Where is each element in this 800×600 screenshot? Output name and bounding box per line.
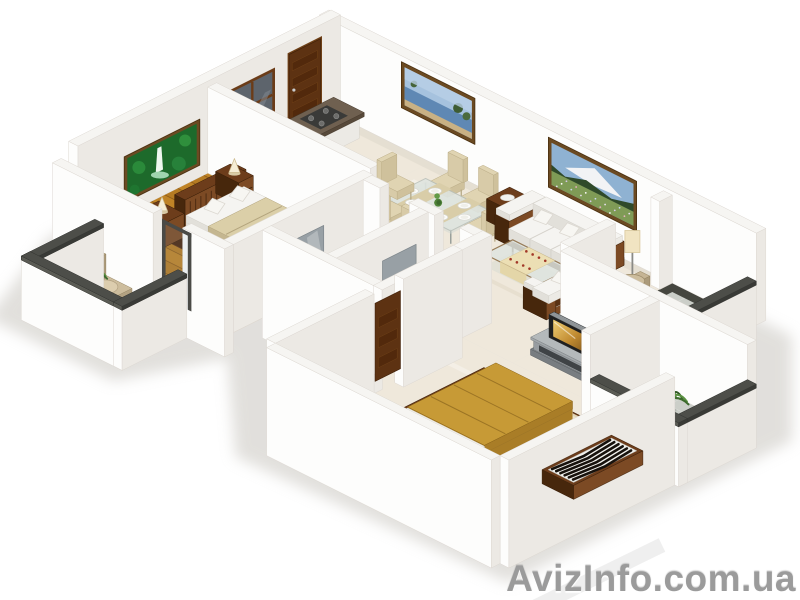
floor-plan-image: AvizInfo.com.ua xyxy=(0,0,800,600)
watermark: AvizInfo.com.ua xyxy=(506,558,796,600)
floor-plan-render xyxy=(0,0,800,600)
bedroom2-door xyxy=(375,291,400,382)
